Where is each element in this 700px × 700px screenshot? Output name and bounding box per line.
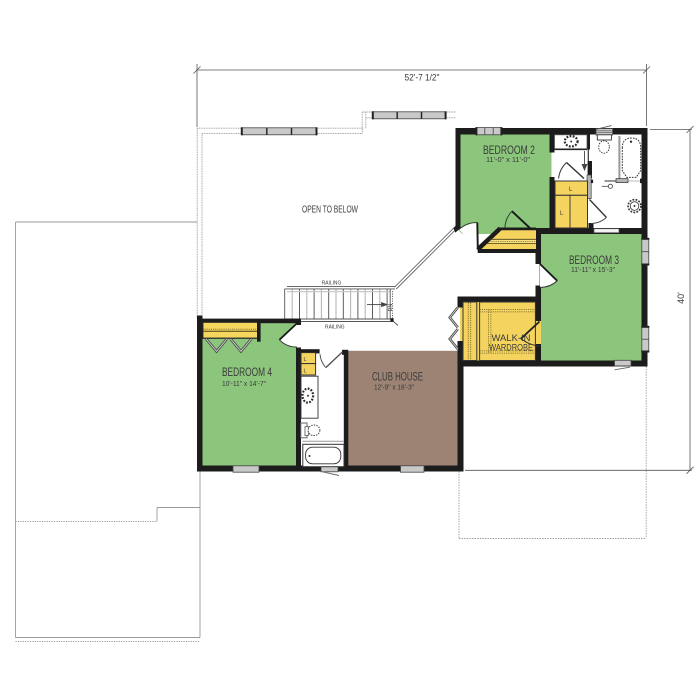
svg-text:OPEN TO BELOW: OPEN TO BELOW (302, 205, 358, 216)
svg-text:L: L (304, 357, 307, 363)
svg-text:DN: DN (388, 304, 394, 312)
svg-text:10'-11" x 14'-7": 10'-11" x 14'-7" (222, 379, 266, 388)
svg-text:11'-0" x 11'-0": 11'-0" x 11'-0" (486, 155, 530, 164)
svg-text:BEDROOM 4: BEDROOM 4 (222, 367, 272, 379)
svg-text:52'-7 1/2": 52'-7 1/2" (405, 73, 440, 83)
svg-text:L: L (304, 369, 307, 375)
svg-text:12'-9" x 18'-3": 12'-9" x 18'-3" (374, 382, 414, 391)
svg-text:RAILING: RAILING (322, 281, 342, 287)
svg-text:WARDROBE: WARDROBE (489, 342, 533, 352)
svg-text:11'-11" x 15'-3": 11'-11" x 15'-3" (571, 265, 615, 274)
svg-text:40': 40' (676, 292, 686, 304)
svg-text:RAILING: RAILING (325, 324, 345, 330)
